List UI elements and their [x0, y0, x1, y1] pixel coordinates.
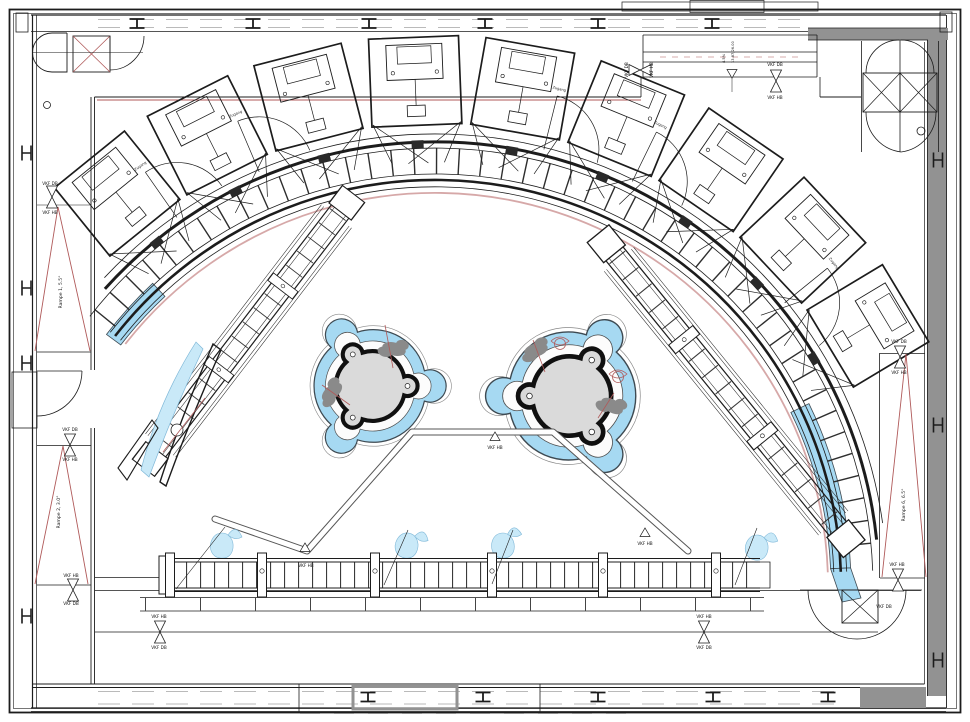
access-label: Zugang: [828, 257, 840, 270]
valve-label: VKF DB: [891, 339, 907, 344]
hydrant-label: VKF HB: [637, 541, 652, 546]
valve-label: VKF HB: [62, 457, 77, 462]
hydrant-label: VKF HB: [487, 445, 502, 450]
valve-label: VKF HB: [889, 562, 904, 567]
valve-label: VKF DB: [42, 181, 58, 186]
access-label: Zugang: [134, 161, 148, 172]
access-label: Zugang: [653, 120, 667, 130]
valve-label: VKF DB: [63, 601, 79, 606]
top-ramp-band: 4.5% 13.87/26.00: [643, 35, 817, 92]
valve-label: VKF DB: [624, 62, 629, 78]
slope-label: 4.5%: [722, 53, 726, 63]
ramp-label: Rampe 2, 3.0°: [56, 495, 62, 528]
hydrant-label: VKF HB: [298, 563, 313, 568]
ramp-left-bottom: Rampe 2, 3.0°: [35, 446, 91, 586]
valve-label: VKF HB: [696, 614, 711, 619]
valve-label: VKF HB: [891, 370, 906, 375]
valve-label: VKF DB: [767, 62, 783, 67]
ramp-label: Rampe 1, 5.5°: [58, 275, 64, 308]
ramp-label: Rampe 6, 6.5°: [901, 488, 907, 521]
vestibule-topright: [862, 40, 939, 152]
valve-label: VKF DB: [696, 645, 712, 650]
stall-ring: [55, 36, 929, 407]
service-counter-band: [140, 527, 779, 611]
ramp-right: Rampe 6, 6.5°: [880, 354, 926, 579]
access-label: Zugang: [552, 85, 566, 92]
valve-label: VKF HB: [151, 614, 166, 619]
valve-label: VKF HB: [767, 95, 782, 100]
door-left-wall: [12, 371, 82, 428]
valve-label: VKF DB: [876, 604, 892, 609]
valve-label: VKF DB: [62, 427, 78, 432]
valve-label: VKF HB: [63, 573, 78, 578]
pool-left: [269, 281, 464, 475]
valve-label: VKF DB: [151, 645, 167, 650]
ramp-left-top: Rampe 1, 5.5°: [35, 205, 91, 352]
valve-label: VKF HB: [649, 62, 654, 77]
dimension-label: 13.87/26.00: [731, 40, 735, 63]
floor-plan-page: Zugang Zugang Zugang Zugang Zugang: [0, 0, 970, 722]
valve-label: VKF HB: [42, 210, 57, 215]
access-label: Zugang: [228, 110, 242, 119]
floor-plan-canvas: Zugang Zugang Zugang Zugang Zugang: [0, 0, 970, 722]
